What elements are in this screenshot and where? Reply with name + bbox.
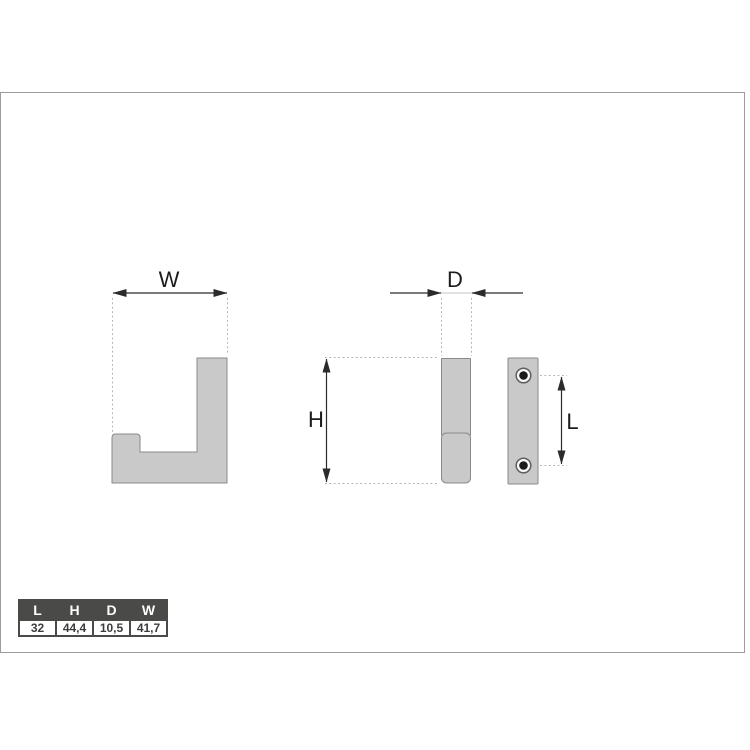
- side-view-upper-body: [442, 359, 471, 436]
- page-background: W D H: [0, 0, 750, 750]
- dimensions-table: L H D W 32 44,4 10,5 41,7: [18, 599, 168, 637]
- header-cell-w: W: [131, 601, 166, 619]
- value-cell-w: 41,7: [131, 621, 166, 635]
- value-cell-d: 10,5: [94, 621, 129, 635]
- hook-profile-view: W: [112, 267, 228, 483]
- depth-dimension-label: D: [447, 267, 463, 292]
- width-dimension-label: W: [159, 267, 180, 292]
- hook-side-view: D H: [308, 267, 523, 484]
- hook-profile-shape: [112, 358, 227, 483]
- header-cell-l: L: [20, 601, 55, 619]
- height-dimension-label: H: [308, 407, 324, 432]
- dimensions-table-header-row: L H D W: [20, 601, 166, 619]
- hole-spacing-dimension-label: L: [566, 409, 578, 434]
- screw-hole-top: [519, 371, 528, 380]
- value-cell-l: 32: [20, 621, 55, 635]
- screw-hole-bottom: [519, 461, 528, 470]
- side-view-lower-body: [442, 433, 471, 483]
- header-cell-h: H: [57, 601, 92, 619]
- header-cell-d: D: [94, 601, 129, 619]
- technical-drawing: W D H: [1, 93, 744, 652]
- mounting-plate-view: L: [508, 358, 579, 484]
- drawing-area: W D H: [0, 92, 745, 653]
- dimensions-table-value-row: 32 44,4 10,5 41,7: [20, 621, 166, 635]
- value-cell-h: 44,4: [57, 621, 92, 635]
